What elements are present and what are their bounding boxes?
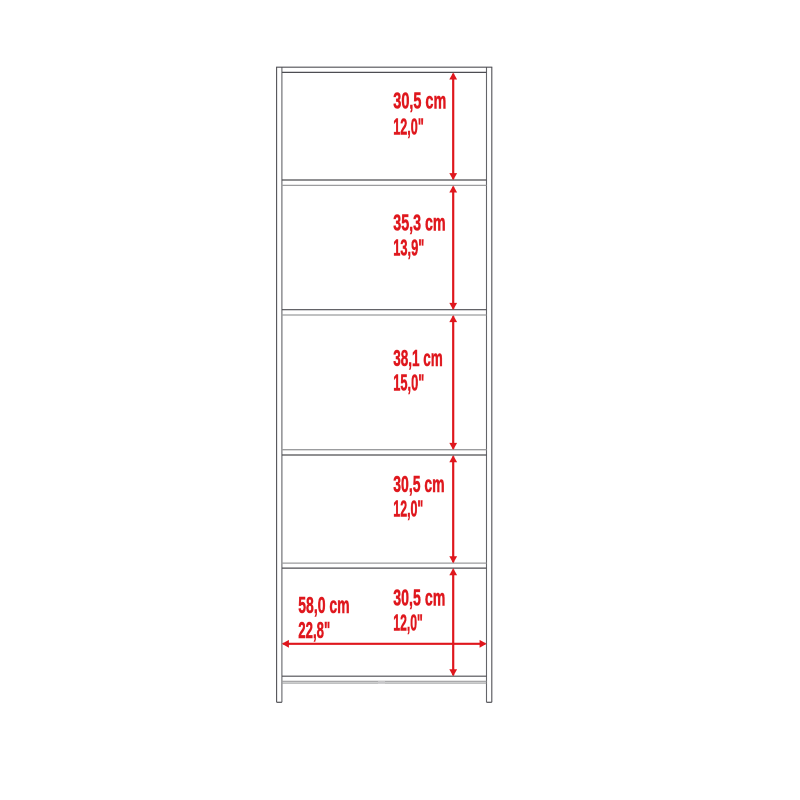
svg-text:30,5 cm: 30,5 cm — [393, 471, 444, 497]
svg-text:22,8": 22,8" — [298, 617, 330, 643]
svg-text:58,0 cm: 58,0 cm — [298, 592, 349, 618]
svg-text:15,0": 15,0" — [393, 370, 424, 396]
svg-text:12,0": 12,0" — [393, 496, 423, 522]
svg-text:30,5 cm: 30,5 cm — [393, 584, 445, 610]
svg-text:12,0": 12,0" — [393, 113, 424, 139]
svg-text:38,1 cm: 38,1 cm — [393, 345, 443, 371]
svg-text:12,0": 12,0" — [393, 610, 423, 636]
svg-text:13,9": 13,9" — [393, 235, 424, 261]
svg-text:30,5 cm: 30,5 cm — [393, 88, 446, 114]
svg-text:35,3 cm: 35,3 cm — [393, 210, 445, 236]
